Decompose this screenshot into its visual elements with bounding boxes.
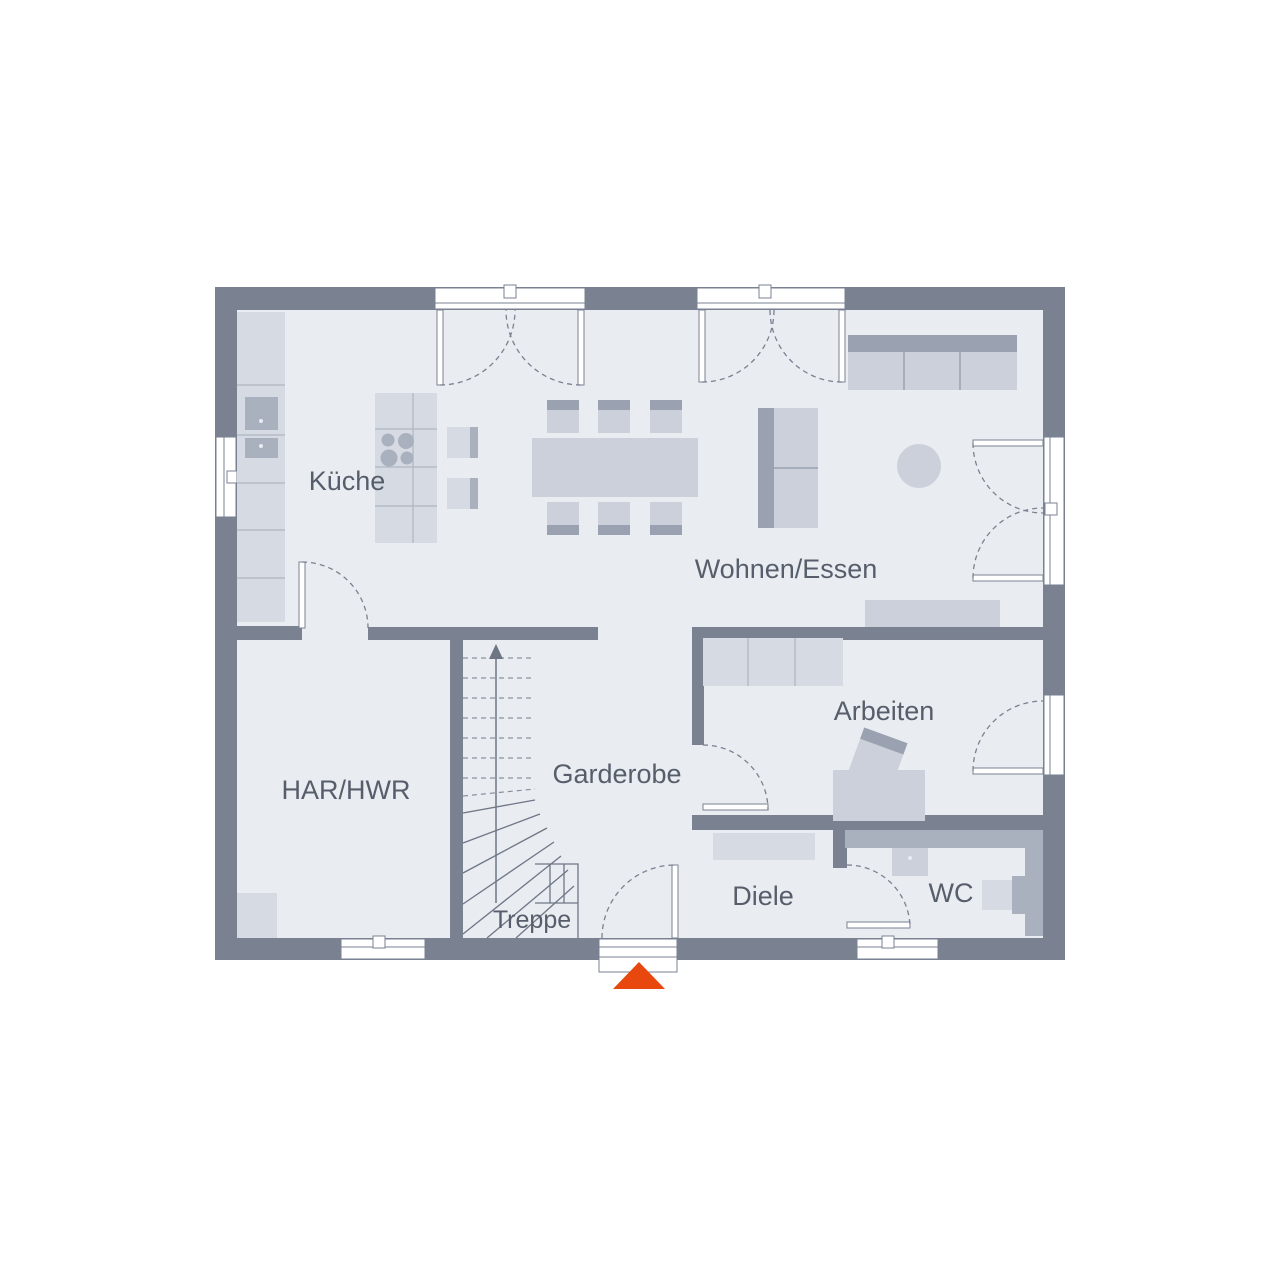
door-leaf xyxy=(839,310,845,382)
room-label-treppe: Treppe xyxy=(493,906,571,934)
living-sideboard xyxy=(865,600,1000,627)
wall-arbeiten-left-stub xyxy=(692,640,704,745)
dining-chair xyxy=(598,400,630,433)
door-leaf xyxy=(847,922,910,928)
round-table xyxy=(897,444,941,488)
floor-plan: Küche Wohnen/Essen HAR/HWR Garderobe Tre… xyxy=(0,0,1280,1280)
dining-chair xyxy=(650,400,682,433)
window-handle-icon xyxy=(227,471,237,483)
dining-chair xyxy=(547,400,579,433)
wc-installation-wall xyxy=(845,830,1043,848)
dining-chair xyxy=(547,502,579,535)
wc-cistern xyxy=(1012,876,1028,914)
window-handle-icon xyxy=(504,285,516,298)
kitchen-counter xyxy=(237,312,285,622)
wc-sink xyxy=(892,848,928,876)
window-handle-icon xyxy=(882,936,894,948)
wall-stair-left xyxy=(450,627,463,938)
wall-diele-wc-stub xyxy=(833,830,847,868)
dining-set xyxy=(532,400,698,535)
kitchen-window xyxy=(216,437,237,517)
door-leaf xyxy=(578,310,584,385)
room-label-diele: Diele xyxy=(732,881,794,911)
sofa xyxy=(848,335,1017,390)
door-leaf xyxy=(672,865,678,938)
door-leaf xyxy=(703,804,768,810)
window-handle-icon xyxy=(1045,503,1057,515)
window-handle-icon xyxy=(759,285,771,298)
room-label-wohnen-essen: Wohnen/Essen xyxy=(695,554,878,584)
room-label-wc: WC xyxy=(929,878,974,908)
floor-plan-drawing: Küche Wohnen/Essen HAR/HWR Garderobe Tre… xyxy=(0,0,1280,1280)
dining-table xyxy=(532,438,698,497)
room-label-kueche: Küche xyxy=(309,466,386,496)
office-shelf xyxy=(703,638,843,686)
wc-window xyxy=(857,936,938,959)
window-handle-icon xyxy=(373,936,385,948)
kitchen-appliance xyxy=(245,438,278,458)
door-leaf xyxy=(973,768,1043,774)
dining-chair xyxy=(650,502,682,535)
door-leaf xyxy=(299,562,305,628)
har-window xyxy=(341,936,425,959)
kitchen-sink xyxy=(245,397,278,430)
door-leaf xyxy=(437,310,443,385)
wc-toilet xyxy=(982,880,1012,910)
room-label-arbeiten: Arbeiten xyxy=(834,696,935,726)
wall-kueche-har xyxy=(215,626,302,640)
door-leaf xyxy=(973,575,1043,581)
room-label-har-hwr: HAR/HWR xyxy=(282,775,411,805)
cabinet xyxy=(758,408,818,528)
wall-garderobe-top xyxy=(368,627,598,640)
wall-top xyxy=(215,287,1065,310)
door-leaf xyxy=(973,440,1043,446)
hall-sideboard xyxy=(713,833,815,860)
room-label-garderobe: Garderobe xyxy=(552,759,681,789)
door-leaf xyxy=(699,310,705,382)
utility-appliance xyxy=(237,893,277,938)
dining-chair xyxy=(598,502,630,535)
